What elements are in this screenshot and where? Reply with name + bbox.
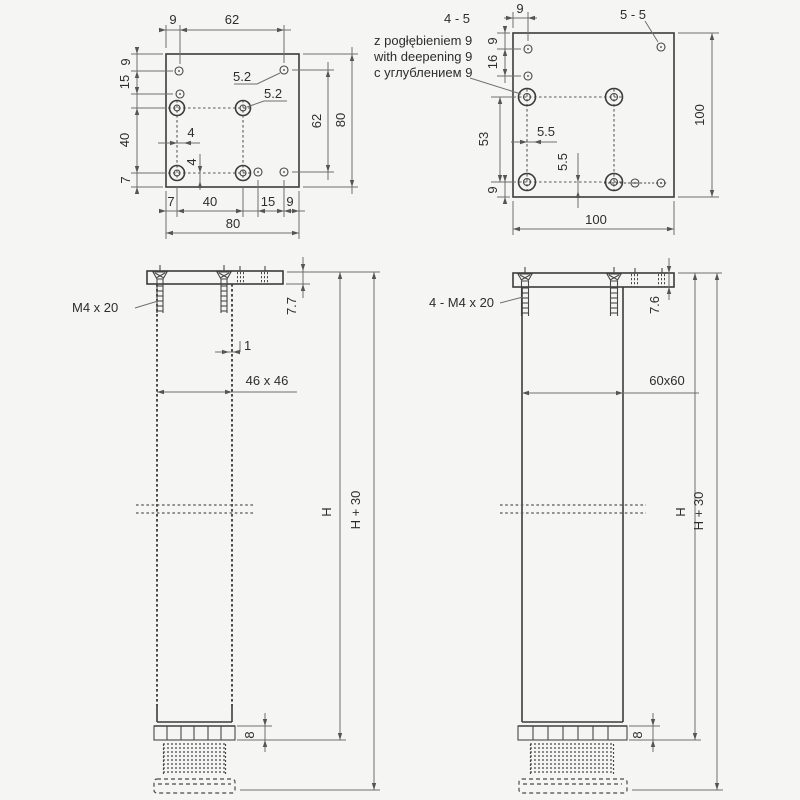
drawing-line [154, 779, 235, 793]
note-english: with deepening 9 [373, 49, 472, 64]
arrowhead [503, 175, 507, 182]
drawing-line [500, 297, 523, 303]
arrowhead [522, 391, 529, 395]
arrowhead [326, 165, 330, 172]
arrowhead [284, 209, 291, 213]
leg60-top-plate [513, 273, 674, 287]
arrowhead [372, 783, 376, 790]
note-polish: z pogłębieniem 9 [374, 33, 472, 48]
callout-p80-hole-5p2-b: 5.2 [264, 86, 282, 101]
arrowhead [157, 390, 164, 394]
arrowhead [503, 49, 507, 56]
arrowhead [135, 71, 139, 78]
arrowhead [277, 28, 284, 32]
arrowhead [159, 28, 166, 32]
dim-p80-bot-7: 7 [167, 194, 174, 209]
dim-p80-offset-4v: 4 [184, 158, 199, 165]
plate-100-counterbored-holes [519, 89, 623, 191]
leg60-screw-left [518, 274, 532, 316]
dim-p100-bot-100: 100 [585, 212, 607, 227]
drawing-line [527, 75, 529, 77]
arrowhead [135, 166, 139, 173]
dim-p100-top-9: 9 [516, 1, 523, 16]
arrowhead [236, 209, 243, 213]
arrowhead [135, 187, 139, 194]
arrowhead [503, 69, 507, 76]
drawing-line [283, 171, 285, 173]
arrowhead [338, 272, 342, 279]
dim-leg46-height: H [319, 507, 334, 516]
drawing-line [283, 69, 285, 71]
arrowhead [263, 719, 267, 726]
dim-leg60-height-ext: H + 30 [691, 492, 706, 531]
plate-100-small-holes [524, 43, 665, 187]
arrowhead [222, 350, 229, 354]
callout-leg60-screw: 4 - M4 x 20 [429, 295, 494, 310]
drawing-line [660, 182, 662, 184]
arrowhead [503, 197, 507, 204]
arrowhead [177, 209, 184, 213]
dim-p100-offset-55v: 5.5 [555, 153, 570, 171]
dim-leg60-thickness: 7.6 [647, 296, 662, 314]
dim-leg46-section: 46 x 46 [246, 373, 289, 388]
arrowhead [616, 391, 623, 395]
arrowhead [166, 231, 173, 235]
arrowhead [576, 191, 580, 198]
arrowhead [693, 273, 697, 280]
drawing-line [170, 101, 185, 116]
arrowhead [350, 180, 354, 187]
callout-p100-corner-5-5: 5 - 5 [620, 7, 646, 22]
dim-p80-bot-9: 9 [286, 194, 293, 209]
drawing-line [247, 101, 287, 107]
dim-p100-right-100: 100 [692, 104, 707, 126]
arrowhead [170, 141, 177, 145]
leg60-foot-nut [518, 726, 627, 740]
leg46-screw-left [153, 272, 167, 313]
dimension-arrowheads [135, 16, 719, 790]
leg46-foot-phantom [154, 779, 235, 793]
dim-p100-left-9a: 9 [485, 37, 500, 44]
arrowhead [292, 209, 299, 213]
leg60-foot-phantom [519, 779, 627, 793]
arrowhead [301, 264, 305, 271]
dim-p100-left-9b: 9 [485, 186, 500, 193]
arrowhead [135, 47, 139, 54]
dim-p80-top-62: 62 [225, 12, 239, 27]
dim-leg60-section: 60x60 [649, 373, 684, 388]
arrowhead [534, 140, 541, 144]
drawing-line [645, 21, 658, 42]
arrowhead [693, 733, 697, 740]
arrowhead [667, 227, 674, 231]
plate-80-plan: 9 62 9 15 40 7 62 80 7 40 15 9 [117, 12, 358, 239]
dim-leg46-foot-8: 8 [242, 731, 257, 738]
arrowhead [528, 16, 535, 20]
callout-leg46-screw: M4 x 20 [72, 300, 118, 315]
dim-p80-left-7: 7 [118, 176, 133, 183]
dim-p80-bot-80: 80 [226, 216, 240, 231]
arrowhead [180, 28, 187, 32]
leg46-screw-right [217, 272, 231, 313]
arrowhead [667, 266, 671, 273]
arrowhead [715, 273, 719, 280]
plate-100-plan: 9 5 - 5 4 - 5 z pogłębieniem 9 with deep… [373, 1, 719, 235]
drawing-line [634, 182, 636, 184]
plate-80-counterbored-holes [170, 101, 251, 181]
dim-leg46-height-ext: H + 30 [348, 491, 363, 530]
arrowhead [159, 209, 166, 213]
drawing-line [257, 171, 259, 173]
leg46-foot-thread [163, 744, 226, 774]
dim-p80-bot-15: 15 [261, 194, 275, 209]
arrowhead [710, 190, 714, 197]
arrowhead [498, 175, 502, 182]
dim-p80-left-15: 15 [117, 75, 132, 89]
arrowhead [576, 175, 580, 182]
drawing-line [519, 779, 627, 793]
dim-p80-left-9: 9 [118, 58, 133, 65]
leg-46-elevation: 7.7 M4 x 20 1 46 x 46 H H + 30 8 [72, 257, 380, 793]
drawing-line [135, 301, 158, 308]
dim-leg46-wall: 1 [244, 338, 251, 353]
arrowhead [258, 209, 265, 213]
dim-leg60-height: H [673, 507, 688, 516]
arrowhead [520, 140, 527, 144]
dim-p80-left-40: 40 [117, 133, 132, 147]
leg-60-elevation: 7.6 4 - M4 x 20 60x60 H H + 30 8 [429, 258, 723, 793]
leg60-foot-thread [530, 744, 614, 774]
dim-p80-top-9: 9 [169, 12, 176, 27]
arrowhead [651, 740, 655, 747]
leg46-foot-nut [154, 726, 235, 740]
arrowhead [372, 272, 376, 279]
drawing-svg: 9 62 9 15 40 7 62 80 7 40 15 9 [0, 0, 800, 800]
arrowhead [326, 70, 330, 77]
arrowhead [506, 16, 513, 20]
leg46-top-plate [147, 271, 283, 284]
arrowhead [498, 97, 502, 104]
arrowhead [225, 390, 232, 394]
arrowhead [715, 783, 719, 790]
arrowhead [277, 209, 284, 213]
note-russian: с углублением 9 [374, 65, 472, 80]
arrowhead [710, 33, 714, 40]
arrowhead [301, 284, 305, 291]
dim-p100-left-16: 16 [485, 55, 500, 69]
arrowhead [135, 87, 139, 94]
arrowhead [513, 227, 520, 231]
arrowhead [292, 231, 299, 235]
dim-p80-right-62: 62 [309, 114, 324, 128]
drawing-line [170, 166, 185, 181]
arrowhead [184, 141, 191, 145]
leg60-screw-right [607, 274, 621, 316]
drawing-line [518, 726, 627, 740]
dim-p100-offset-55h: 5.5 [537, 124, 555, 139]
dim-leg46-thickness: 7.7 [284, 297, 299, 315]
callout-p80-hole-5p2-a: 5.2 [233, 69, 251, 84]
arrowhead [135, 108, 139, 115]
callout-p100-4-5: 4 - 5 [444, 11, 470, 26]
arrowhead [338, 733, 342, 740]
dim-p80-right-80: 80 [333, 113, 348, 127]
arrowhead [350, 54, 354, 61]
arrowhead [651, 719, 655, 726]
technical-drawing-furniture-legs: 9 62 9 15 40 7 62 80 7 40 15 9 [0, 0, 800, 800]
arrowhead [667, 287, 671, 294]
drawing-line [179, 93, 181, 95]
drawing-line [178, 70, 180, 72]
drawing-line [527, 48, 529, 50]
arrowhead [503, 26, 507, 33]
dim-leg60-foot-8: 8 [630, 731, 645, 738]
arrowhead [198, 181, 202, 188]
arrowhead [198, 166, 202, 173]
dim-p80-offset-4h: 4 [187, 125, 194, 140]
dim-p100-left-53: 53 [476, 132, 491, 146]
drawing-line [660, 46, 662, 48]
plate-100-outline [513, 33, 674, 197]
arrowhead [263, 740, 267, 747]
arrowhead [233, 350, 240, 354]
dim-p80-bot-40: 40 [203, 194, 217, 209]
